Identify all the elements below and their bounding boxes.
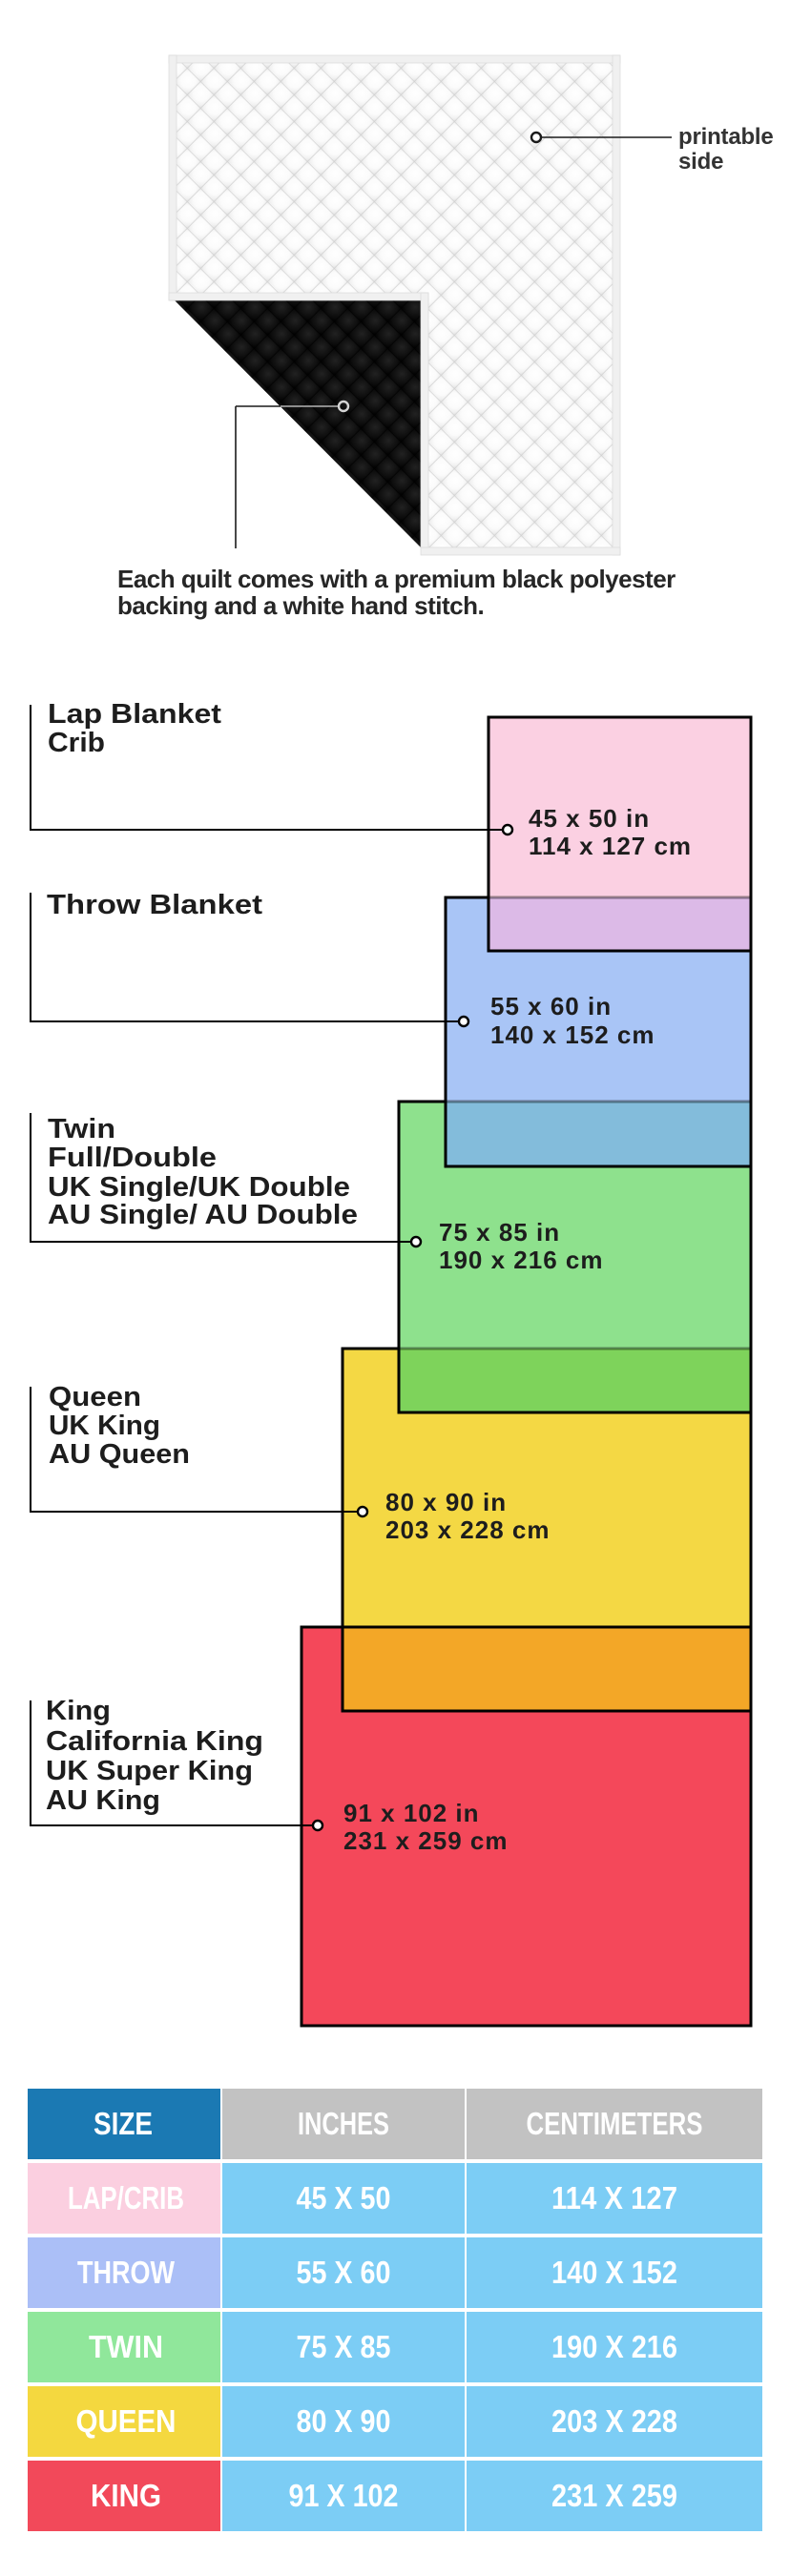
svg-text:AU Single/ AU Double: AU Single/ AU Double (48, 1200, 358, 1230)
svg-text:Queen: Queen (49, 1382, 141, 1412)
svg-text:114 X 127: 114 X 127 (551, 2180, 677, 2215)
svg-text:45 x 50 in: 45 x 50 in (529, 804, 650, 833)
svg-text:203 x 228 cm: 203 x 228 cm (385, 1515, 550, 1544)
svg-text:THROW: THROW (77, 2255, 176, 2290)
svg-text:SIZE: SIZE (94, 2106, 153, 2141)
svg-text:80 X 90: 80 X 90 (297, 2403, 391, 2439)
svg-text:Crib: Crib (48, 728, 105, 758)
svg-text:AU Queen: AU Queen (49, 1439, 190, 1470)
svg-text:231 x 259 cm: 231 x 259 cm (343, 1826, 508, 1855)
svg-text:LAP/CRIB: LAP/CRIB (68, 2180, 184, 2215)
svg-text:CENTIMETERS: CENTIMETERS (527, 2106, 703, 2141)
svg-text:TWIN: TWIN (89, 2329, 163, 2364)
svg-text:91 X 102: 91 X 102 (289, 2478, 399, 2513)
svg-text:55 X 60: 55 X 60 (297, 2255, 391, 2290)
svg-text:Twin: Twin (48, 1114, 115, 1144)
svg-text:KING: KING (91, 2478, 161, 2513)
svg-text:75 x 85 in: 75 x 85 in (439, 1218, 560, 1247)
svg-text:UK King: UK King (49, 1411, 160, 1441)
svg-text:75 X 85: 75 X 85 (297, 2329, 391, 2364)
svg-text:91 x 102 in: 91 x 102 in (343, 1799, 480, 1827)
svg-text:King: King (46, 1696, 111, 1726)
svg-text:203 X 228: 203 X 228 (551, 2403, 677, 2439)
svg-text:side: side (678, 149, 723, 175)
svg-text:INCHES: INCHES (298, 2106, 389, 2141)
svg-text:45 X 50: 45 X 50 (297, 2180, 391, 2215)
svg-text:Each quilt comes with a premiu: Each quilt comes with a premium black po… (117, 565, 676, 593)
svg-text:114 x 127 cm: 114 x 127 cm (529, 832, 692, 860)
svg-text:80 x 90 in: 80 x 90 in (385, 1488, 507, 1516)
svg-text:UK Single/UK Double: UK Single/UK Double (48, 1172, 350, 1203)
svg-text:190 X 216: 190 X 216 (551, 2329, 677, 2364)
svg-text:QUEEN: QUEEN (76, 2403, 177, 2439)
svg-text:Full/Double: Full/Double (48, 1143, 217, 1173)
svg-text:Lap Blanket: Lap Blanket (48, 699, 221, 730)
svg-text:UK Super King: UK Super King (46, 1756, 253, 1786)
svg-text:190 x 216 cm: 190 x 216 cm (439, 1246, 603, 1274)
svg-text:Throw Blanket: Throw Blanket (47, 890, 262, 920)
svg-text:140 X 152: 140 X 152 (551, 2255, 677, 2290)
svg-text:printable: printable (678, 124, 774, 150)
svg-text:231 X 259: 231 X 259 (551, 2478, 677, 2513)
svg-text:AU King: AU King (46, 1785, 160, 1816)
svg-text:140 x 152 cm: 140 x 152 cm (490, 1020, 655, 1049)
svg-text:California King: California King (46, 1726, 263, 1757)
svg-text:backing and a white hand stitc: backing and a white hand stitch. (117, 591, 484, 620)
svg-text:55 x 60 in: 55 x 60 in (490, 992, 612, 1020)
